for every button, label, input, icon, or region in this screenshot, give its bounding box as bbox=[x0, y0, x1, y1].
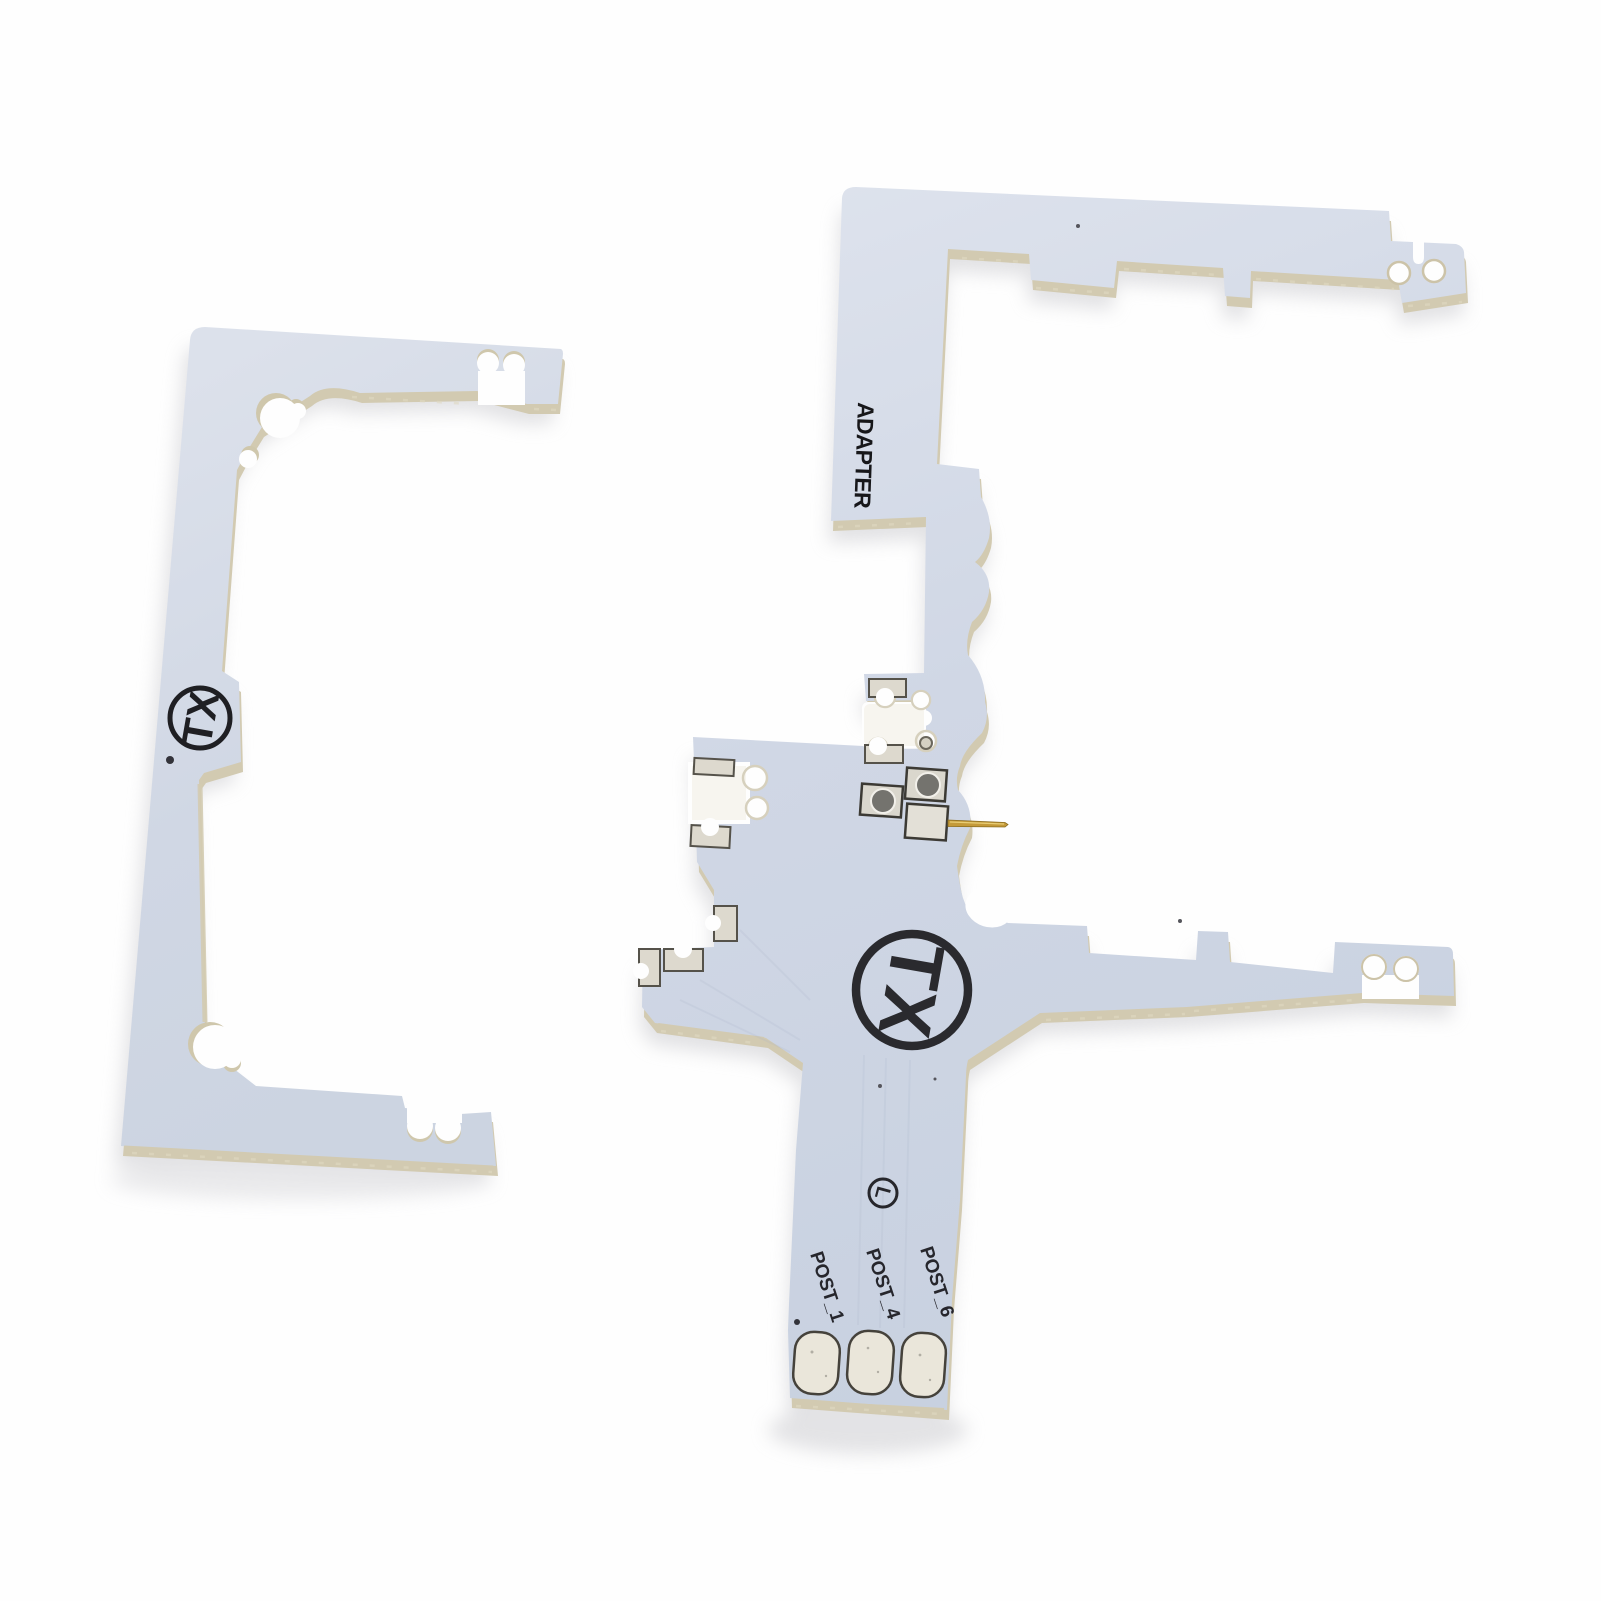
svg-text:TX: TX bbox=[173, 688, 229, 749]
svg-text:ADAPTER: ADAPTER bbox=[849, 402, 879, 510]
svg-text:TX: TX bbox=[862, 936, 960, 1044]
